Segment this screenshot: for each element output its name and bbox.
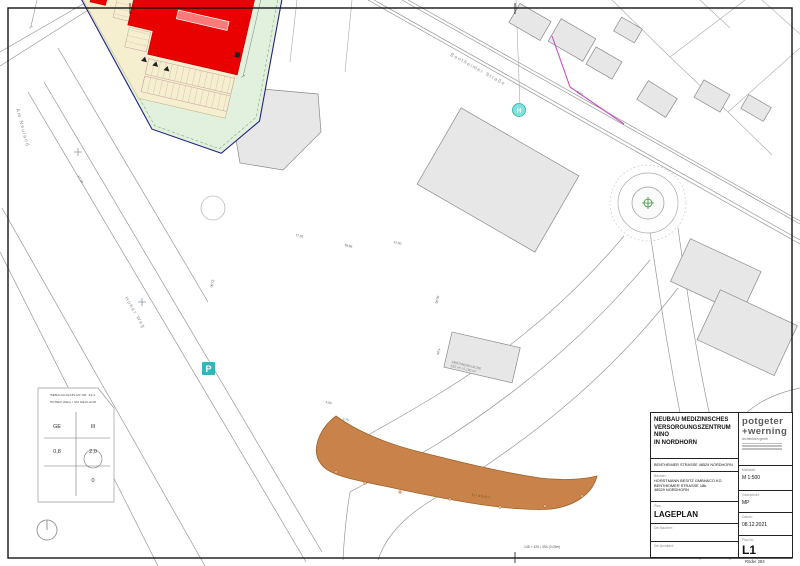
bottom-note: 145 + 420 / 394 (0,05m) bbox=[524, 545, 560, 549]
legend-use: GE bbox=[48, 424, 66, 430]
logo-fine-print bbox=[742, 443, 782, 444]
client-signature-cell: Der Bauherr: bbox=[651, 524, 738, 542]
north-arrow-icon bbox=[37, 520, 57, 540]
scale-value: M 1:500 bbox=[742, 475, 789, 481]
plan-name: LAGEPLAN bbox=[654, 510, 735, 519]
project-address: BENTHEIMER STRASSE 48529 NORDHORN bbox=[651, 459, 738, 472]
plan-label: Plan: bbox=[654, 504, 735, 508]
parking-label: P bbox=[205, 364, 211, 374]
logo-line2: +werning bbox=[742, 427, 789, 437]
architect-logo: potgeter +werning architekten gmbh bbox=[739, 413, 792, 466]
date-cell: Datum: 08.12.2021 bbox=[739, 513, 792, 536]
neighbor-shed bbox=[444, 332, 520, 383]
plan-sheet: H P Bentheimer Straße Hoher Weg Am Neula… bbox=[0, 0, 800, 566]
drawn-by-cell: Gezeichnet: MP bbox=[739, 491, 792, 513]
date-value: 08.12.2021 bbox=[742, 522, 789, 528]
scale-label: Maßstab: bbox=[742, 468, 789, 472]
title-block-left: NEUBAU MEDIZINISCHES VERSORGUNGSZENTRUM … bbox=[651, 413, 739, 557]
client-line: 48529 NORDHORN bbox=[654, 488, 735, 493]
architect-signature-cell: Der Architekt: bbox=[651, 542, 738, 557]
scale-cell: Maßstab: M 1:500 bbox=[739, 466, 792, 491]
legend-gfz: 2,0 bbox=[84, 449, 102, 455]
plan-number-value: L1 bbox=[742, 543, 789, 557]
project-title-line: IN NORDHORN bbox=[654, 440, 735, 448]
drawn-by-value: MP bbox=[742, 500, 789, 506]
legend-extra: 0 bbox=[84, 478, 102, 484]
drawn-by-label: Gezeichnet: bbox=[742, 493, 789, 497]
project-title: NEUBAU MEDIZINISCHES VERSORGUNGSZENTRUM … bbox=[651, 413, 738, 459]
plot-stamp: Röder 293 bbox=[745, 559, 765, 564]
legend-line1: BEBAUUNGSPLAN NR. 62.2 bbox=[40, 393, 106, 397]
project-title-line: NEUBAU MEDIZINISCHES bbox=[654, 417, 735, 425]
parking-marker: P bbox=[202, 362, 215, 375]
legend-storeys: III bbox=[84, 424, 102, 430]
logo-subline: architekten gmbh bbox=[742, 437, 789, 441]
bus-stop-label: H bbox=[517, 109, 521, 115]
client-signature-label: Der Bauherr: bbox=[654, 526, 735, 530]
existing-building-south bbox=[417, 108, 579, 252]
zoning-legend-box bbox=[38, 388, 114, 502]
roundabout bbox=[610, 165, 686, 241]
architect-signature-label: Der Architekt: bbox=[654, 544, 735, 548]
title-block: NEUBAU MEDIZINISCHES VERSORGUNGSZENTRUM … bbox=[650, 412, 793, 558]
plan-name-cell: Plan: LAGEPLAN bbox=[651, 502, 738, 524]
plan-number-cell: Plan Nr.: L1 bbox=[739, 536, 792, 557]
legend-line2: HOHER WEG / AM NEULAND bbox=[40, 400, 106, 404]
legend-grz: 0,8 bbox=[48, 449, 66, 455]
project-address-text: BENTHEIMER STRASSE 48529 NORDHORN bbox=[654, 463, 733, 467]
logo-fine-print bbox=[742, 445, 782, 446]
client-cell: Bauherr: HORSTMANN BESITZ GMBH&CO.KG BEN… bbox=[651, 472, 738, 502]
project-title-line: VERSORGUNGSZENTRUM NINO bbox=[654, 425, 735, 440]
title-block-right: potgeter +werning architekten gmbh Maßst… bbox=[739, 413, 792, 557]
swale bbox=[316, 416, 597, 509]
date-label: Datum: bbox=[742, 515, 789, 519]
bus-stop-marker: H bbox=[513, 104, 526, 117]
plan-number-label: Plan Nr.: bbox=[742, 538, 789, 542]
logo-fine-print bbox=[742, 448, 782, 449]
